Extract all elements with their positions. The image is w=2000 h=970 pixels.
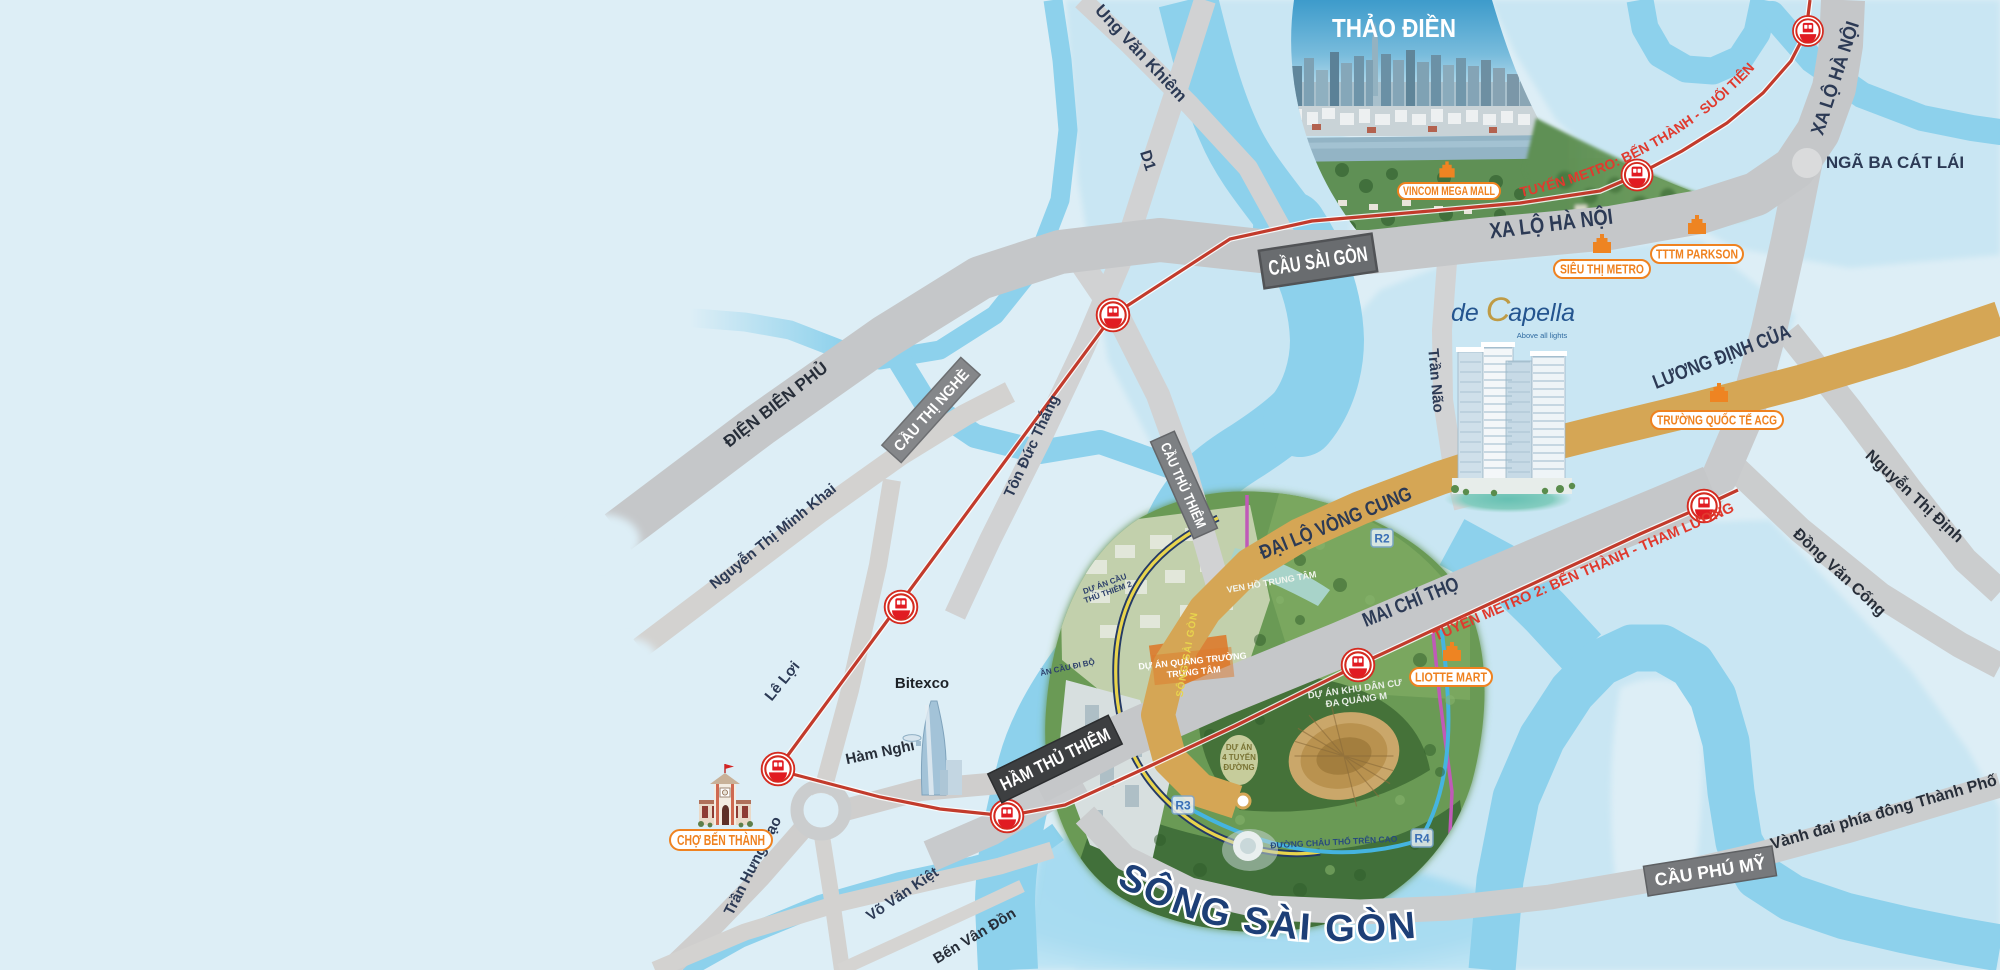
svg-text:NGÃ BA CÁT LÁI: NGÃ BA CÁT LÁI (1826, 152, 1964, 172)
svg-text:LIOTTE MART: LIOTTE MART (1415, 671, 1487, 685)
svg-text:Bitexco: Bitexco (895, 675, 949, 692)
svg-text:DỰ ÁN: DỰ ÁN (1226, 743, 1252, 752)
svg-text:4 TUYẾN: 4 TUYẾN (1222, 752, 1256, 762)
svg-text:TTTM PARKSON: TTTM PARKSON (1656, 248, 1738, 262)
svg-text:R2: R2 (1374, 532, 1390, 546)
svg-text:R4: R4 (1414, 832, 1430, 846)
svg-text:ĐƯỜNG: ĐƯỜNG (1223, 763, 1254, 772)
svg-text:SIÊU THỊ METRO: SIÊU THỊ METRO (1560, 262, 1644, 277)
svg-text:CHỢ BẾN THÀNH: CHỢ BẾN THÀNH (677, 832, 765, 849)
svg-text:VINCOM MEGA MALL: VINCOM MEGA MALL (1403, 186, 1495, 198)
svg-text:TRƯỜNG QUỐC TẾ ACG: TRƯỜNG QUỐC TẾ ACG (1657, 413, 1777, 428)
svg-text:Above all lights: Above all lights (1517, 331, 1568, 340)
svg-text:R3: R3 (1175, 799, 1191, 813)
svg-text:THẢO ĐIỀN: THẢO ĐIỀN (1332, 13, 1456, 43)
